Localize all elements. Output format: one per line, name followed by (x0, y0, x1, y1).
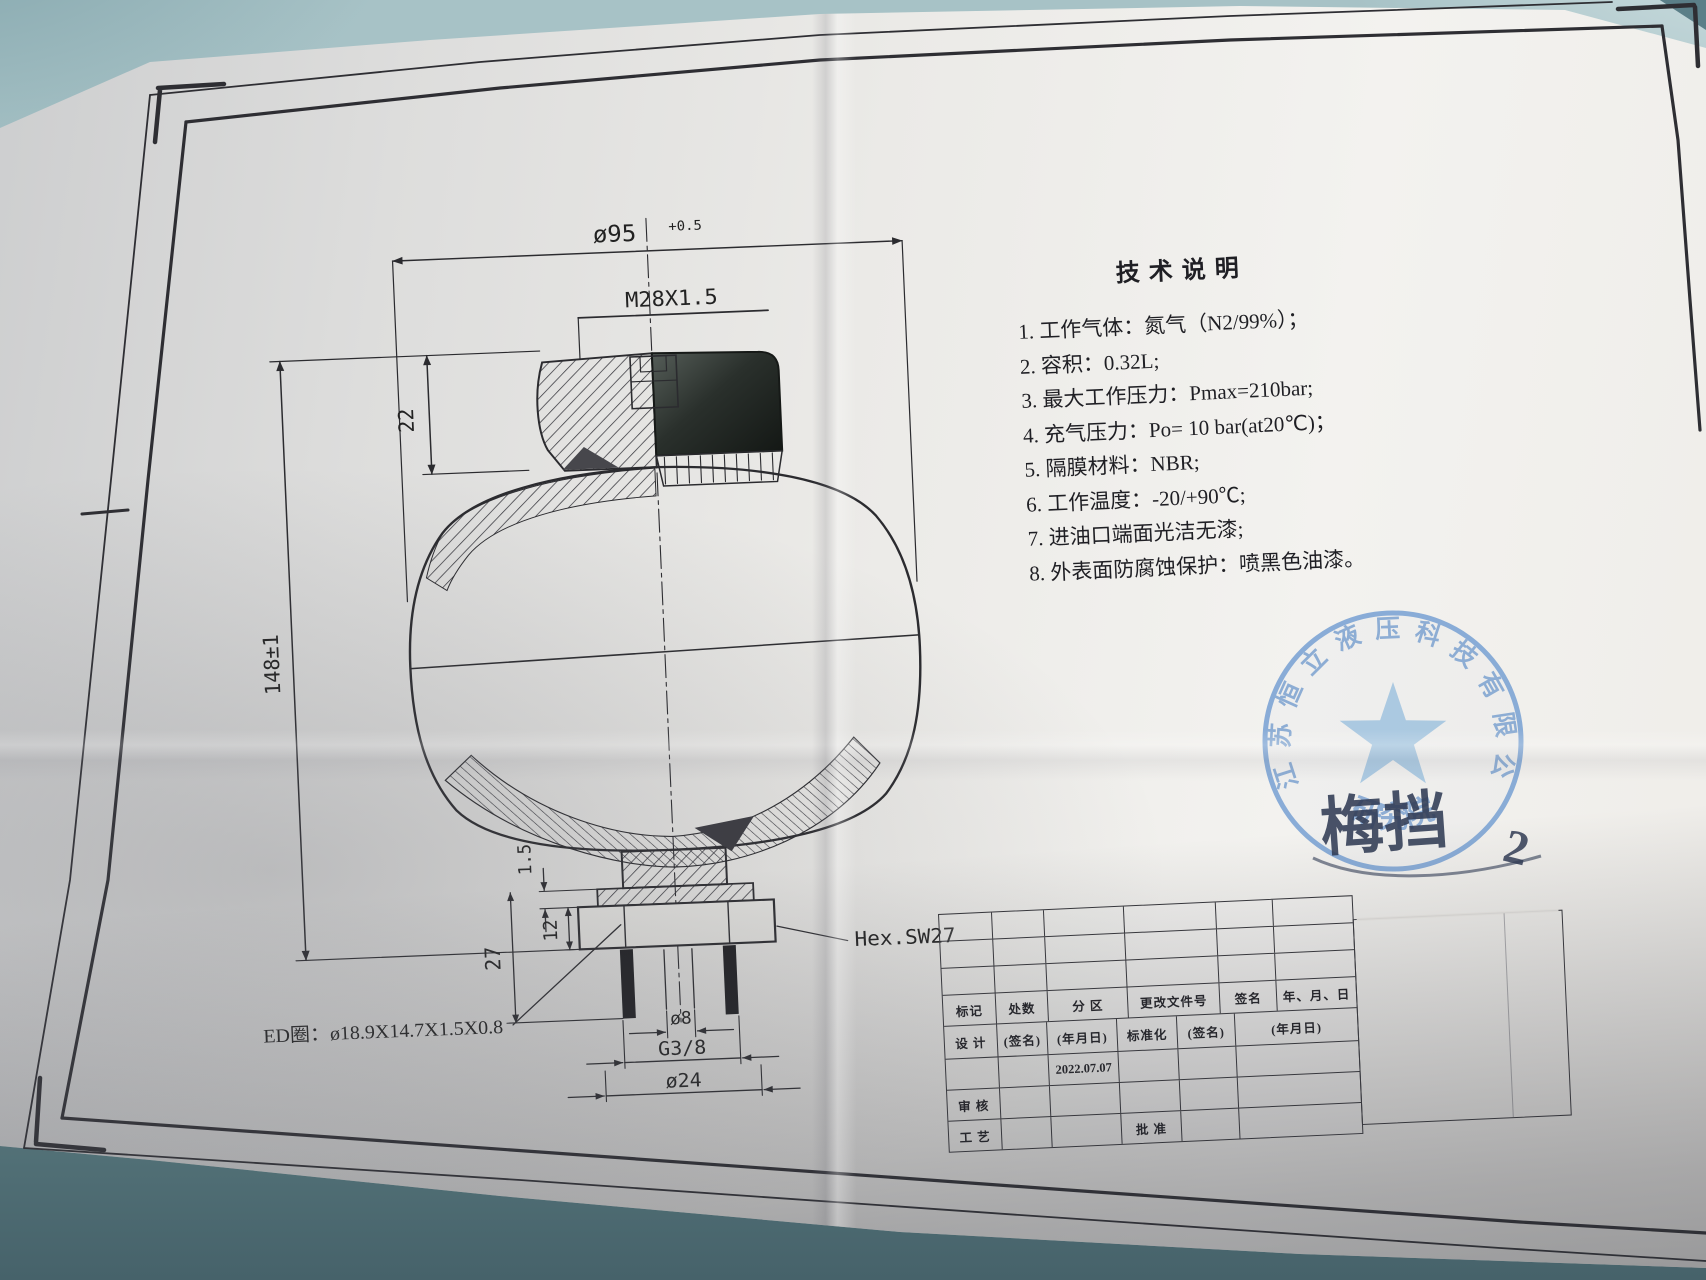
table-cell (1049, 1083, 1120, 1116)
table-cell (1179, 1078, 1238, 1111)
table-cell (1272, 896, 1353, 926)
table-cell (946, 1057, 999, 1089)
shoulder-section-hatch (422, 468, 660, 591)
dim-body-diameter-tol: +0.5 (668, 218, 702, 235)
dim-port-depth: 27 (480, 946, 506, 971)
cell-design: 设 计 (944, 1024, 997, 1058)
label-seal-ring: ED圈：ø18.9X14.7X1.5X0.8 (263, 1017, 504, 1047)
valve-body-section (535, 353, 656, 472)
table-cell (1217, 954, 1275, 983)
dim-valve-height: 22 (394, 408, 420, 433)
header-cell-mark: 标记 (943, 994, 996, 1026)
table-cell (1045, 961, 1126, 991)
dim-spigot-diameter: ø24 (665, 1069, 702, 1093)
inner-frame-right (1662, 26, 1700, 430)
table-cell (993, 964, 1046, 992)
table-cell (940, 940, 993, 968)
cell-sign-hint: (签名) (996, 1022, 1047, 1056)
port-neck-section (622, 848, 728, 889)
header-cell-count: 处数 (995, 991, 1048, 1023)
table-cell (939, 913, 992, 941)
table-cell (1124, 929, 1217, 959)
table-cell (1215, 900, 1273, 929)
corner-mark-top-right (1618, 5, 1698, 66)
outer-border-top (150, 2, 1612, 95)
table-cell (992, 937, 1045, 965)
g38-arrow-left (587, 1063, 623, 1064)
m28-underline (578, 310, 768, 318)
dim27-extension (507, 1019, 623, 1024)
table-cell (1273, 923, 1354, 953)
table-cell (1235, 1041, 1359, 1077)
dim-body-diameter: ø95 (592, 219, 636, 248)
table-cell (1274, 950, 1355, 980)
title-block: 标记 处数 分 区 更改文件号 签名 年、月、日 设 计 (签名) (年月日) … (938, 885, 1578, 1149)
cell-standardization: 标准化 (1116, 1016, 1177, 1051)
whiteout-mark (1356, 909, 1558, 921)
dia24-arrow-left (568, 1096, 604, 1097)
handwriting-characters: 梅挡 (1318, 785, 1451, 865)
cell-date-hint-2: (年月日) (1234, 1008, 1358, 1046)
dim22-line (427, 356, 432, 475)
header-cell-signature: 签名 (1218, 981, 1276, 1014)
table-cell (1044, 934, 1125, 964)
table-cell (1238, 1103, 1362, 1139)
m28-extension (578, 318, 580, 359)
g38-arrow-right (743, 1056, 779, 1057)
dim-step: 1.5 (515, 844, 537, 876)
dim22-extensions (423, 470, 529, 474)
thread-stub-right-wall (723, 945, 739, 1014)
table-cell (1119, 1080, 1180, 1113)
bore-lines (664, 949, 695, 1009)
dim12-extension (564, 949, 580, 950)
dim-top-thread: M28X1.5 (625, 285, 719, 313)
cell-design-date: 2022.07.07 (1048, 1052, 1119, 1085)
table-cell (1117, 1049, 1178, 1082)
handwriting-number: 2 (1498, 819, 1534, 876)
table-cell (1123, 902, 1216, 932)
table-cell (1000, 1117, 1051, 1149)
dim-total-height: 148±1 (258, 634, 285, 695)
header-cell-zone: 分 区 (1047, 988, 1128, 1022)
cell-process: 工 艺 (948, 1119, 1001, 1151)
dim-bore: ø8 (670, 1009, 693, 1029)
dim1p5-arrow-top (543, 868, 544, 890)
dia8-arrow-left (630, 1032, 666, 1033)
corner-mark-bottom-left (36, 1078, 104, 1150)
header-cell-date: 年、月、日 (1275, 977, 1356, 1011)
centering-tick-left (82, 510, 128, 514)
table-cell (1216, 927, 1274, 956)
table-cell (1180, 1109, 1239, 1142)
table-cell (999, 1086, 1050, 1118)
cell-date-hint: (年月日) (1046, 1019, 1117, 1054)
table-cell (998, 1055, 1049, 1087)
photo-of-technical-drawing: { "photo": { "table_color": "#a3bfc3", "… (0, 0, 1706, 1280)
hex-leader-line (777, 923, 848, 943)
dim-port-thread: G3/8 (658, 1036, 707, 1060)
dia24-arrow-right (764, 1088, 800, 1089)
cell-approve: 批 准 (1120, 1111, 1181, 1144)
title-block-revision-table: 标记 处数 分 区 更改文件号 签名 年、月、日 设 计 (签名) (年月日) … (938, 895, 1363, 1153)
table-cell (1043, 907, 1124, 937)
dim12-line (568, 908, 570, 950)
technical-notes: 技术说明 1. 工作气体：氮气（N2/99%）； 2. 容积：0.32L; 3.… (1015, 236, 1510, 590)
table-cell (1050, 1114, 1121, 1147)
table-cell (941, 967, 994, 995)
thread-stub-left-wall (620, 949, 636, 1018)
right-section-divider (1503, 913, 1513, 1117)
inner-frame-left (62, 122, 186, 1118)
hex-nut (578, 899, 776, 949)
table-cell (1237, 1072, 1361, 1108)
dim27-line (510, 893, 516, 1023)
dia8-arrow-right (697, 1029, 733, 1030)
table-cell (991, 910, 1044, 938)
dim-thread-length: 12 (540, 919, 562, 942)
gas-valve-cap (652, 348, 782, 455)
company-stamp: 江苏恒立液压科技有限公司 研究院 梅挡 2 (1243, 596, 1543, 886)
title-block-right-section (1352, 910, 1571, 1125)
table-cell (1125, 956, 1218, 986)
table-cell (1177, 1047, 1236, 1080)
cell-audit: 审 核 (947, 1088, 1000, 1120)
header-cell-change-doc: 更改文件号 (1127, 983, 1220, 1017)
inner-frame-top (186, 26, 1662, 122)
cell-sign-hint-2: (签名) (1176, 1014, 1235, 1049)
